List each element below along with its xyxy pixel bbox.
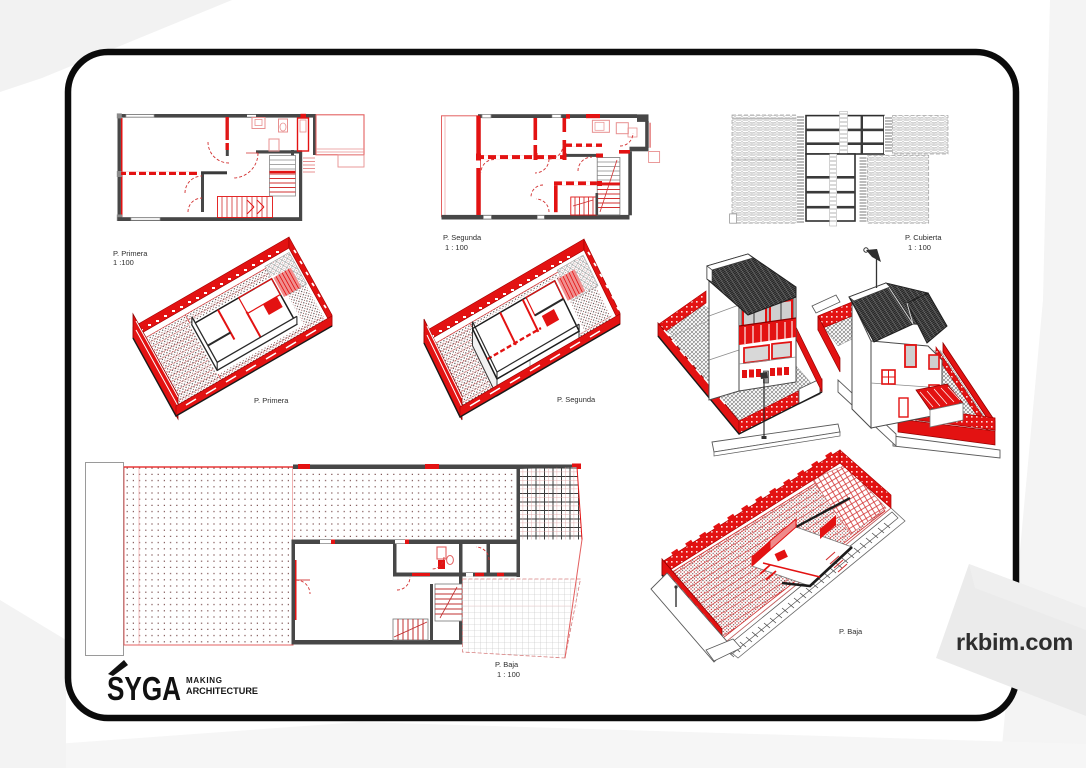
svg-text:P. Baja: P. Baja — [839, 627, 863, 636]
svg-text:P. Segunda: P. Segunda — [443, 233, 482, 242]
svg-text:ARCHITECTURE: ARCHITECTURE — [186, 686, 258, 697]
svg-text:rkbim.com: rkbim.com — [956, 629, 1073, 655]
svg-text:P. Primera: P. Primera — [254, 396, 289, 405]
svg-text:1 : 100: 1 : 100 — [497, 670, 520, 679]
svg-text:P. Cubierta: P. Cubierta — [905, 233, 942, 242]
svg-text:P. Segunda: P. Segunda — [557, 395, 596, 404]
svg-text:1 :100: 1 :100 — [113, 258, 134, 267]
svg-text:1 : 100: 1 : 100 — [445, 243, 468, 252]
svg-text:P. Primera: P. Primera — [113, 249, 148, 258]
svg-text:P. Baja: P. Baja — [495, 660, 519, 669]
svg-text:1 : 100: 1 : 100 — [908, 243, 931, 252]
svg-text:MAKING: MAKING — [186, 676, 222, 685]
svg-text:SYGA: SYGA — [107, 670, 181, 707]
